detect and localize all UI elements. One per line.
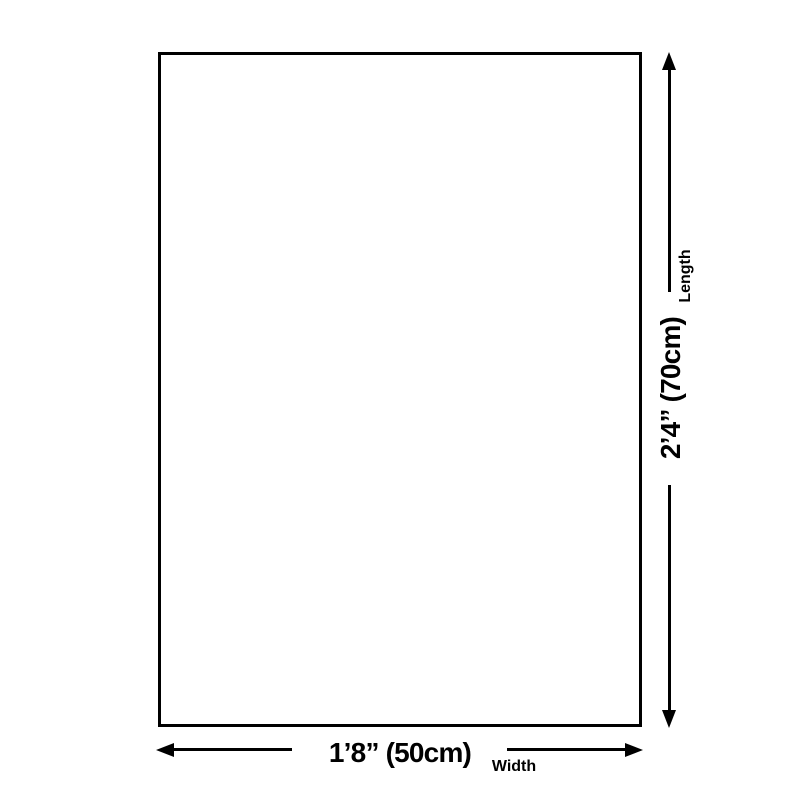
length-arrow-bottom-segment [668,485,671,711]
width-arrow-left-segment [174,748,292,751]
length-axis-label: Length [677,249,695,302]
width-value-label: 1’8” (50cm) [329,737,471,769]
length-arrow-top-segment [668,68,671,292]
length-value-label: 2’4” (70cm) [655,317,687,459]
width-axis-label: Width [492,758,536,776]
left-arrowhead-icon [156,743,174,757]
right-arrowhead-icon [625,743,643,757]
width-arrow-right-segment [507,748,625,751]
dimension-diagram: 2’4” (70cm) Length 1’8” (50cm) Width [0,0,800,800]
product-outline-box [158,52,642,727]
down-arrowhead-icon [662,710,676,728]
